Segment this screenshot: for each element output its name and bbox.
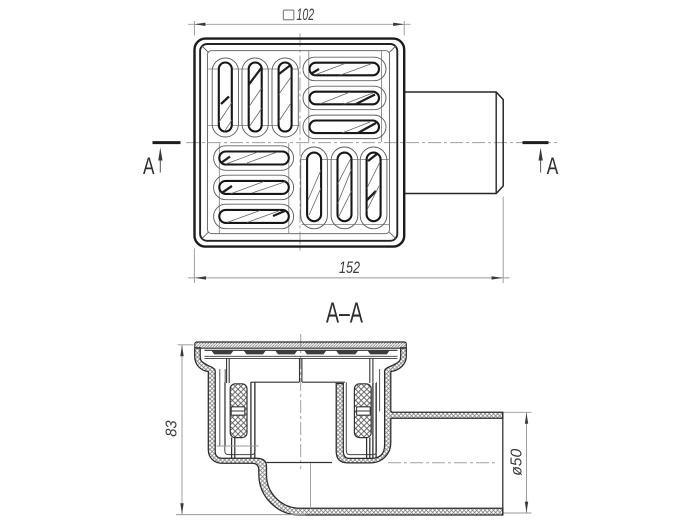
svg-text:A: A bbox=[143, 153, 155, 180]
svg-text:A–A: A–A bbox=[326, 298, 363, 330]
svg-text:ø50: ø50 bbox=[508, 448, 525, 475]
svg-text:102: 102 bbox=[297, 6, 315, 24]
svg-text:152: 152 bbox=[339, 258, 360, 277]
svg-text:83: 83 bbox=[164, 420, 181, 437]
svg-text:A: A bbox=[547, 153, 559, 180]
